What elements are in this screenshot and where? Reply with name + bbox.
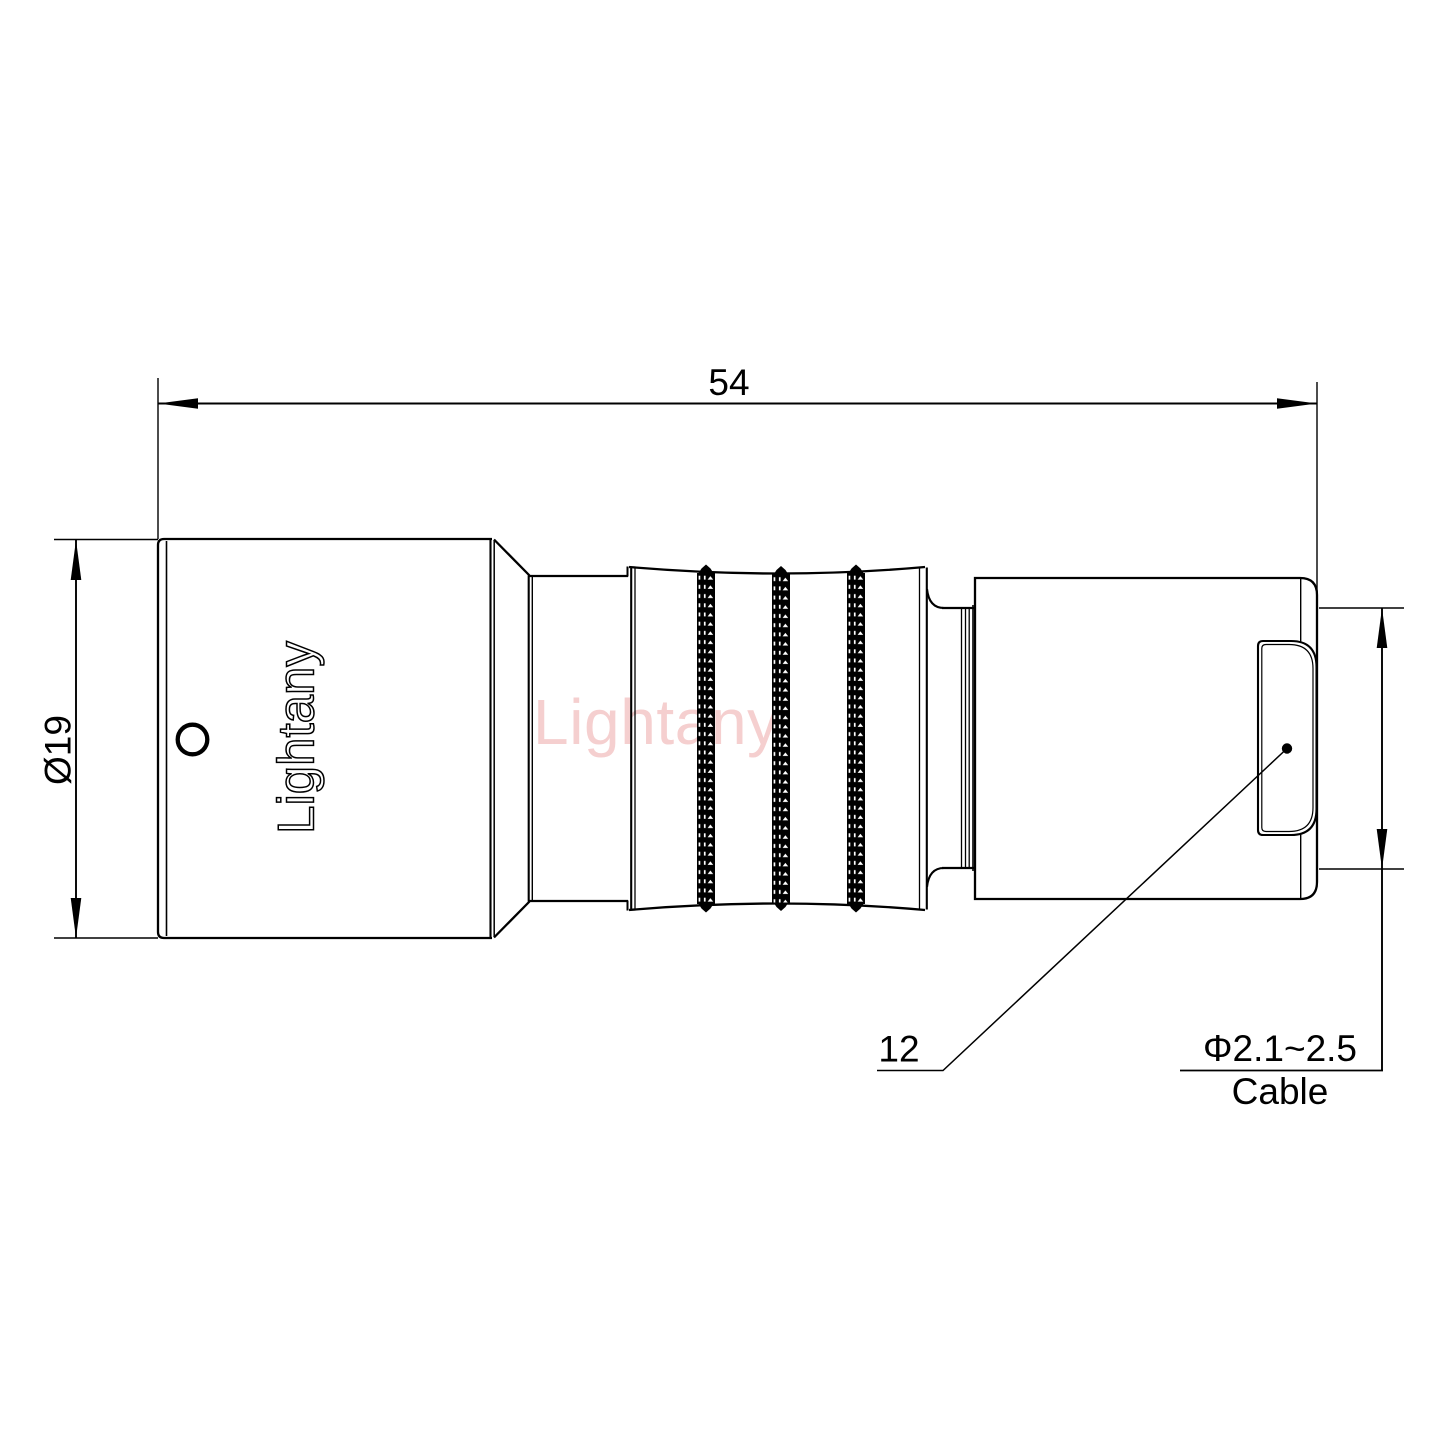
svg-text:12: 12	[878, 1029, 919, 1070]
svg-text:Ø19: Ø19	[38, 715, 79, 785]
svg-text:Lightany: Lightany	[533, 686, 780, 758]
svg-text:Lightany: Lightany	[268, 641, 325, 834]
svg-text:Φ2.1~2.5: Φ2.1~2.5	[1203, 1028, 1357, 1069]
svg-text:Cable: Cable	[1232, 1071, 1329, 1112]
svg-text:54: 54	[708, 362, 749, 403]
